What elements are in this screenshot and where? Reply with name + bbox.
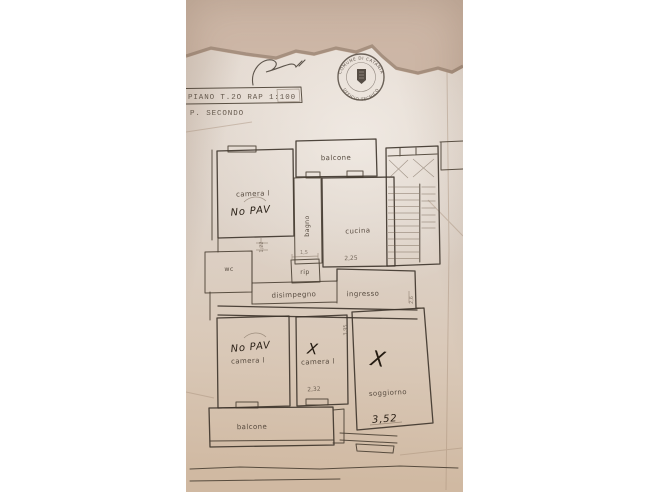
annotation-flourish-bottom [244, 333, 266, 338]
annotation-x-soggiorno: X [368, 346, 387, 372]
label-ingresso: ingresso [347, 290, 380, 299]
dim-wc-side: 1,22 [259, 241, 265, 252]
wall-balcone-bottom-inner [210, 409, 344, 443]
floorplan-drawing: PIANO T.2O RAP 1:100 P. SECONDO COMUNE D… [186, 0, 463, 492]
annotation-no-pav-bottom: No PAV [230, 340, 272, 355]
municipal-stamp: COMUNE DI CATANIA UFFICIO TECNICO [337, 54, 385, 102]
annotation-x-camera: X [305, 339, 319, 358]
label-wc: wc [224, 266, 233, 273]
floorplan-photo: PIANO T.2O RAP 1:100 P. SECONDO COMUNE D… [186, 0, 463, 492]
label-balcone-top: balcone [321, 154, 351, 163]
label-camera-bottom-left: camera l [231, 356, 265, 365]
wall-soggiorno [352, 308, 433, 430]
dim-rip: 1,5 [300, 250, 308, 256]
stairs-cross-marks [389, 159, 434, 178]
stamp-bottom-text: UFFICIO TECNICO [342, 87, 380, 102]
label-soggiorno: soggiorno [369, 388, 407, 398]
window-camera-bm [306, 399, 328, 405]
dim-camera-mid: 2,32 [307, 386, 321, 394]
dim-soggiorno: 3,52 [372, 413, 398, 426]
screenshot-canvas: PIANO T.2O RAP 1:100 P. SECONDO COMUNE D… [0, 0, 648, 492]
stairs-steps-right [422, 187, 436, 228]
title-text: PIANO T.2O RAP 1:100 [188, 94, 296, 102]
dim-cucina: 2,25 [344, 255, 358, 262]
title-block: PIANO T.2O RAP 1:100 P. SECONDO [186, 87, 302, 118]
dim-soggiorno-side: 3,95 [343, 324, 349, 335]
wall-cucina [322, 177, 395, 267]
label-cucina: cucina [345, 226, 371, 235]
paper-fold-lines [190, 466, 458, 481]
dim-ingresso: 2,6 [409, 296, 415, 304]
stairs-top-landing [388, 148, 437, 156]
plan-walls [190, 139, 463, 481]
label-bagno: bagno [304, 215, 311, 236]
label-disimpegno: disimpegno [271, 290, 316, 300]
stamp-emblem [357, 69, 366, 84]
stairs-steps-left [388, 187, 419, 259]
annotation-no-pav-top: No PAV [230, 204, 271, 219]
wall-balcone-soggiorno [340, 433, 397, 453]
label-camera-bottom-mid: camera l [301, 357, 335, 366]
label-rip: rip [300, 269, 309, 276]
label-balcone-bottom: balcone [237, 423, 267, 432]
paper-edge-shadow [186, 46, 463, 73]
wall-top-right-partial [440, 141, 463, 170]
floor-text: P. SECONDO [190, 110, 244, 118]
signature-squiggle [253, 60, 305, 85]
svg-text:UFFICIO TECNICO: UFFICIO TECNICO [342, 87, 380, 102]
wall-ingresso [337, 269, 416, 308]
